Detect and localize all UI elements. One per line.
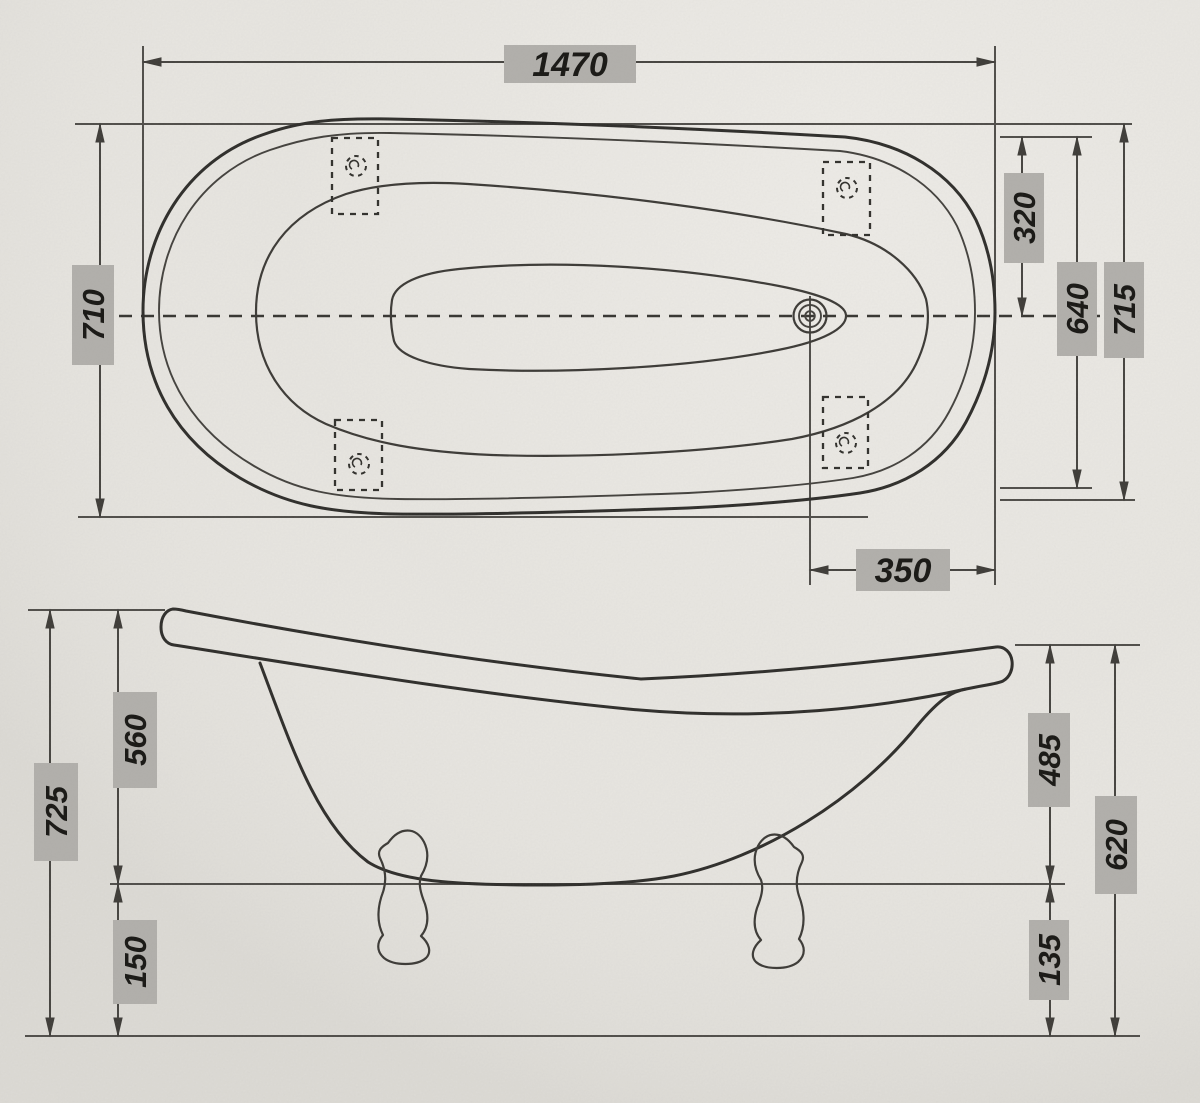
paper-grain <box>0 0 1200 1103</box>
bathtub-dimension-drawing: 1470 710 320 640 715 350 <box>0 0 1200 1103</box>
